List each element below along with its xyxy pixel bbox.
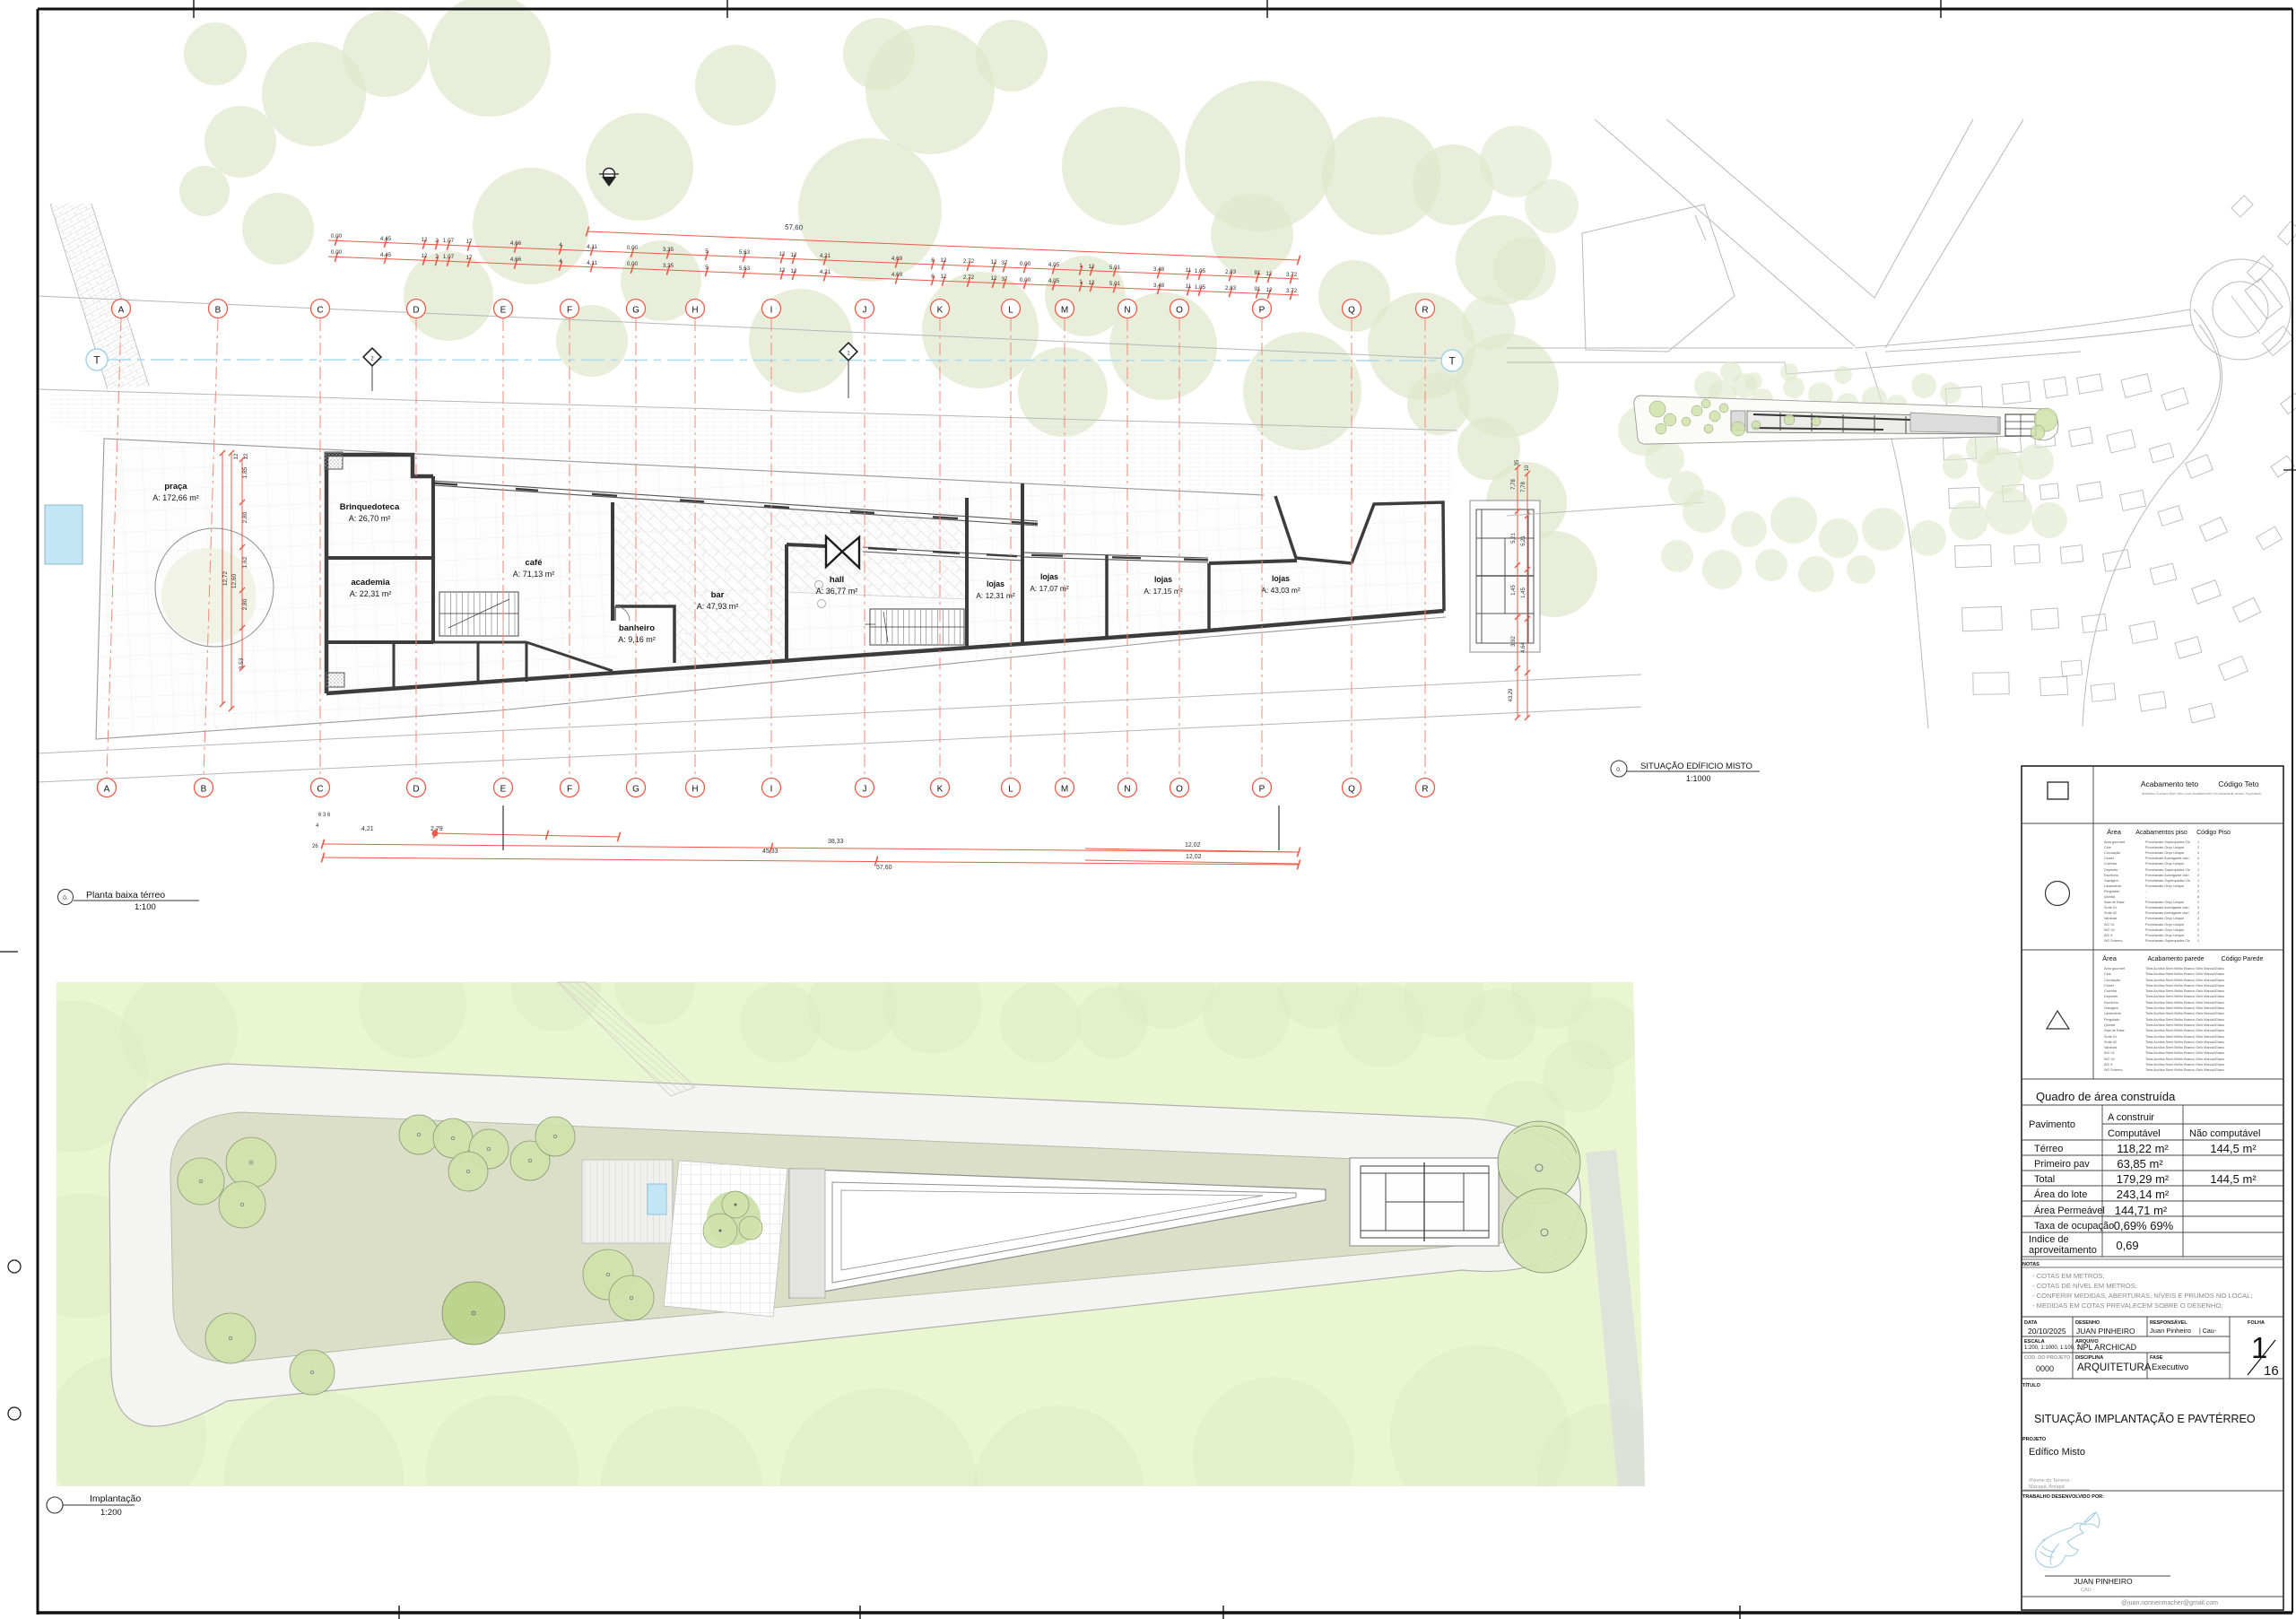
svg-text:Pergolado: Pergolado — [2104, 1018, 2119, 1022]
svg-text:DATA: DATA — [2024, 1320, 2037, 1326]
svg-text:praça: praça — [164, 482, 187, 492]
svg-text:43,29: 43,29 — [1509, 688, 1514, 702]
svg-text:Térreo: Térreo — [2034, 1144, 2063, 1154]
svg-text:1: 1 — [2213, 1063, 2215, 1066]
svg-text:Escritório: Escritório — [2104, 874, 2118, 877]
svg-text:0.: 0. — [63, 895, 68, 901]
svg-text:Suíte 01: Suíte 01 — [2104, 906, 2117, 910]
svg-text:| Cau-: | Cau- — [2199, 1328, 2217, 1335]
svg-text:I: I — [770, 306, 773, 316]
svg-text:2,72: 2,72 — [963, 274, 975, 281]
svg-text:ESCALA: ESCALA — [2024, 1339, 2045, 1345]
svg-text:1: 1 — [2197, 840, 2199, 844]
svg-text:café: café — [525, 558, 542, 568]
svg-text:E: E — [500, 306, 507, 316]
svg-text:1: 1 — [2213, 1058, 2215, 1061]
svg-text:#Nome do Terreno: #Nome do Terreno — [2029, 1478, 2069, 1484]
svg-text:DISCIPLINA: DISCIPLINA — [2075, 1355, 2103, 1361]
svg-text:2,83: 2,83 — [1225, 269, 1237, 275]
svg-text:1: 1 — [1079, 279, 1083, 285]
svg-text:Madeira Cumaru frisó reto com: Madeira Cumaru frisó reto com acabamento… — [2142, 791, 2261, 796]
svg-text:Porcelanato Onyx Unique: Porcelanato Onyx Unique — [2145, 928, 2184, 932]
svg-text:Porcelanato Onyx Unique: Porcelanato Onyx Unique — [2145, 862, 2184, 866]
svg-text:A: 17,15 m²: A: 17,15 m² — [1144, 587, 1183, 596]
svg-text:11: 11 — [1186, 283, 1192, 290]
svg-text:12: 12 — [1088, 264, 1095, 270]
svg-text:R: R — [1422, 306, 1428, 316]
svg-text:Porcelanato Avantgarde clari: Porcelanato Avantgarde clari — [2145, 911, 2189, 915]
svg-text:12: 12 — [778, 267, 786, 274]
svg-text:5,63: 5,63 — [739, 249, 751, 256]
svg-text:3,72: 3,72 — [1286, 288, 1298, 294]
svg-text:E: E — [500, 785, 507, 795]
svg-text:Acabamentos piso: Acabamentos piso — [2135, 830, 2187, 836]
svg-text:L: L — [1008, 785, 1013, 795]
svg-text:4: 4 — [559, 258, 562, 265]
svg-text:38,33: 38,33 — [828, 839, 844, 845]
svg-text:Quintal: Quintal — [2104, 895, 2115, 899]
svg-text:Garagem: Garagem — [2104, 1006, 2118, 1010]
svg-text:WC 01: WC 01 — [2104, 1051, 2115, 1055]
svg-text:0,00: 0,00 — [1020, 261, 1031, 267]
svg-text:4,69: 4,69 — [891, 256, 903, 262]
svg-text:N: N — [1124, 306, 1130, 316]
svg-text:1: 1 — [2213, 984, 2215, 988]
svg-text:1: 1 — [2213, 1023, 2215, 1027]
svg-text:Tinta Acrílica Semi Brilho Bra: Tinta Acrílica Semi Brilho Branco Gelo M… — [2145, 967, 2224, 971]
svg-text:0,69: 0,69 — [2116, 1239, 2138, 1252]
svg-text:3: 3 — [2197, 884, 2199, 888]
svg-text:10: 10 — [1525, 465, 1530, 471]
svg-text:4: 4 — [2197, 851, 2199, 855]
svg-text:0,00: 0,00 — [331, 233, 343, 239]
svg-text:banheiro: banheiro — [619, 623, 655, 633]
svg-text:Tinta Acrílica Semi Brilho Bra: Tinta Acrílica Semi Brilho Branco Gelo M… — [2145, 1051, 2224, 1055]
svg-text:Tinta Acrílica Semi Brilho Bra: Tinta Acrílica Semi Brilho Branco Gelo M… — [2145, 1068, 2224, 1072]
svg-text:2,72: 2,72 — [963, 258, 975, 265]
svg-text:0.: 0. — [1616, 767, 1622, 773]
svg-text:1: 1 — [2213, 989, 2215, 993]
svg-text:A construir: A construir — [2108, 1112, 2154, 1123]
svg-text:Tinta Acrílica Semi Brilho Bra: Tinta Acrílica Semi Brilho Branco Gelo M… — [2145, 979, 2224, 982]
svg-text:Área do lote: Área do lote — [2034, 1188, 2087, 1200]
svg-text:12: 12 — [990, 259, 997, 265]
svg-text:Cozinha: Cozinha — [2104, 862, 2118, 866]
svg-text:12,72: 12,72 — [222, 570, 229, 586]
svg-text:hall: hall — [830, 575, 844, 585]
svg-text:A: 47,93 m²: A: 47,93 m² — [697, 602, 739, 611]
svg-text:WC II: WC II — [2104, 1063, 2113, 1066]
svg-text:Depósito: Depósito — [2104, 868, 2118, 872]
svg-text:12: 12 — [1088, 280, 1095, 286]
svg-text:T: T — [1448, 355, 1456, 368]
svg-text:1: 1 — [2213, 1001, 2215, 1005]
svg-text:Código Piso: Código Piso — [2196, 830, 2231, 836]
svg-text:26: 26 — [312, 844, 318, 849]
svg-text:Depósito: Depósito — [2104, 995, 2118, 998]
svg-text:TÍTULO: TÍTULO — [2022, 1381, 2041, 1388]
svg-text:3,53: 3,53 — [239, 657, 245, 669]
svg-text:4,05: 4,05 — [1048, 278, 1060, 284]
svg-text:1: 1 — [2251, 1331, 2267, 1364]
svg-text:0,69% 69%: 0,69% 69% — [2114, 1219, 2174, 1232]
svg-text:Tinta Acrílica Semi Brilho Bra: Tinta Acrílica Semi Brilho Branco Gelo M… — [2145, 1023, 2224, 1027]
svg-text:3: 3 — [2197, 911, 2199, 915]
svg-text:Lavanderia: Lavanderia — [2104, 1012, 2122, 1015]
svg-text:20/10/2025: 20/10/2025 — [2028, 1327, 2066, 1336]
svg-text:P: P — [1259, 306, 1265, 316]
svg-text:4,45: 4,45 — [380, 236, 392, 242]
svg-text:1: 1 — [2213, 1018, 2215, 1022]
svg-text:O: O — [1176, 306, 1183, 316]
svg-text:4,66: 4,66 — [510, 240, 522, 247]
svg-text:COD. DO PROJETO: COD. DO PROJETO — [2024, 1355, 2071, 1361]
svg-text:A: 12,31 m²: A: 12,31 m² — [976, 591, 1015, 600]
svg-text:1,62: 1,62 — [242, 556, 248, 568]
svg-text:144,71 m²: 144,71 m² — [2115, 1204, 2168, 1217]
svg-text:Área: Área — [2107, 828, 2122, 836]
svg-text:J: J — [863, 785, 867, 795]
svg-text:1: 1 — [2213, 1029, 2215, 1032]
svg-text:17: 17 — [465, 239, 473, 245]
svg-text:2: 2 — [2197, 928, 2199, 932]
svg-text:8: 8 — [2197, 895, 2199, 899]
svg-text:Cozinha: Cozinha — [2104, 989, 2118, 993]
svg-text:1:1000: 1:1000 — [1686, 774, 1711, 783]
svg-text:4,64: 4,64 — [1521, 642, 1526, 653]
svg-text:- MEDIDAS EM COTAS PREVALECEM: - MEDIDAS EM COTAS PREVALECEM SOBRE O DE… — [2032, 1301, 2222, 1310]
svg-text:Porcelanato Onyx Unique: Porcelanato Onyx Unique — [2145, 923, 2184, 927]
svg-text:Porcelanato Onyx Unique: Porcelanato Onyx Unique — [2145, 884, 2184, 888]
svg-text:Acabamento parede: Acabamento parede — [2147, 956, 2204, 962]
svg-text:Varanda: Varanda — [2104, 917, 2118, 920]
svg-text:5,21: 5,21 — [1521, 535, 1526, 546]
svg-text:A: 43,03 m²: A: 43,03 m² — [1261, 586, 1300, 595]
svg-text:91: 91 — [1254, 270, 1261, 276]
svg-text:M: M — [1061, 306, 1068, 316]
svg-text:DESENHO: DESENHO — [2075, 1320, 2100, 1326]
svg-text:K: K — [937, 306, 944, 316]
svg-text:Edífico Misto: Edífico Misto — [2029, 1447, 2085, 1458]
svg-text:Sala de Estar: Sala de Estar — [2104, 901, 2126, 904]
svg-text:Porcelanato Superquadra Cls: Porcelanato Superquadra Cls — [2145, 879, 2190, 883]
svg-text:2: 2 — [2197, 923, 2199, 927]
svg-text:1,07: 1,07 — [443, 254, 455, 260]
svg-text:144,5 m²: 144,5 m² — [2210, 1172, 2257, 1186]
svg-text:Código Parede: Código Parede — [2222, 956, 2264, 962]
svg-text:A: 17,07 m²: A: 17,07 m² — [1030, 584, 1069, 593]
svg-text:Código Teto: Código Teto — [2218, 779, 2258, 788]
svg-text:7,78: 7,78 — [1511, 479, 1517, 490]
svg-text:Tinta Acrílica Semi Brilho Bra: Tinta Acrílica Semi Brilho Branco Gelo M… — [2145, 995, 2224, 998]
svg-text:R: R — [1422, 785, 1428, 795]
svg-text:3,35: 3,35 — [663, 263, 674, 269]
svg-text:A: 36,77 m²: A: 36,77 m² — [816, 587, 858, 596]
svg-text:1,45: 1,45 — [1521, 588, 1526, 598]
svg-text:O: O — [1176, 785, 1183, 795]
svg-text:Área gourmet: Área gourmet — [2104, 840, 2126, 844]
svg-text:Porcelanato Onyx Unique: Porcelanato Onyx Unique — [2145, 934, 2184, 937]
svg-text:1: 1 — [2197, 939, 2199, 943]
svg-text:WC 02: WC 02 — [2104, 1058, 2115, 1061]
svg-text:Porcelanato Avantgarde clari: Porcelanato Avantgarde clari — [2145, 857, 2189, 860]
svg-text:12,60: 12,60 — [231, 573, 238, 588]
svg-text:3,72: 3,72 — [1286, 272, 1298, 278]
svg-text:4,11: 4,11 — [587, 244, 597, 250]
svg-text:5: 5 — [705, 248, 709, 255]
svg-text:N: N — [1124, 785, 1130, 795]
svg-text:3,92: 3,92 — [1511, 636, 1517, 647]
svg-text:M: M — [1061, 785, 1068, 795]
svg-text:G: G — [632, 306, 639, 316]
svg-text:Q: Q — [1348, 785, 1355, 795]
svg-text:Q: Q — [1348, 306, 1355, 316]
svg-text:Tinta Acrílica Semi Brilho Bra: Tinta Acrílica Semi Brilho Branco Gelo M… — [2145, 1063, 2224, 1066]
svg-text:Tinta Acrílica Semi Brilho Bra: Tinta Acrílica Semi Brilho Branco Gelo M… — [2145, 1035, 2224, 1039]
svg-text:6: 6 — [931, 257, 935, 264]
svg-text:2: 2 — [2197, 874, 2199, 877]
svg-text:Área gourmet: Área gourmet — [2104, 967, 2126, 971]
svg-text:Suíte 02: Suíte 02 — [2104, 911, 2117, 915]
svg-text:Taxa de ocupação: Taxa de ocupação — [2034, 1221, 2114, 1232]
svg-text:12: 12 — [778, 251, 786, 257]
svg-text:CAU -: CAU - — [2081, 1588, 2094, 1593]
svg-text:12: 12 — [990, 275, 997, 282]
svg-text:Tinta Acrílica Semi Brilho Bra: Tinta Acrílica Semi Brilho Branco Gelo M… — [2145, 1046, 2224, 1049]
svg-text:Pergolado: Pergolado — [2104, 890, 2119, 893]
svg-text:4,45: 4,45 — [380, 252, 392, 258]
svg-text:K: K — [937, 785, 944, 795]
svg-text:Quintal: Quintal — [2104, 1023, 2115, 1027]
svg-text:bar: bar — [711, 590, 725, 600]
svg-text:144,5 m²: 144,5 m² — [2210, 1142, 2257, 1155]
svg-text:Tinta Acrílica Semi Brilho Bra: Tinta Acrílica Semi Brilho Branco Gelo M… — [2145, 1006, 2224, 1010]
svg-text:5,01: 5,01 — [1109, 265, 1121, 271]
svg-text:1: 1 — [2213, 967, 2215, 971]
svg-text:0,00: 0,00 — [331, 249, 343, 256]
svg-text:5,63: 5,63 — [739, 265, 751, 272]
svg-text:Lavanderia: Lavanderia — [2104, 884, 2122, 888]
svg-text:Executivo: Executivo — [2152, 1362, 2188, 1372]
svg-text:C: C — [317, 785, 323, 795]
svg-text:Porcelanato Avantgarde clari: Porcelanato Avantgarde clari — [2145, 906, 2189, 910]
svg-text:Suíte 01: Suíte 01 — [2104, 1035, 2117, 1039]
svg-text:1: 1 — [2197, 868, 2199, 872]
svg-text:1,07: 1,07 — [443, 238, 455, 244]
svg-text:A: A — [118, 306, 125, 316]
svg-text:B: B — [215, 306, 222, 316]
svg-text:1: 1 — [2213, 1012, 2215, 1015]
svg-text:5: 5 — [705, 265, 709, 271]
svg-text:Porcelanato Onyx Unique: Porcelanato Onyx Unique — [2145, 851, 2184, 855]
svg-text:WC 02: WC 02 — [2104, 928, 2115, 932]
svg-text:Tinta Acrílica Semi Brilho Bra: Tinta Acrílica Semi Brilho Branco Gelo M… — [2145, 1001, 2224, 1005]
svg-text:Tinta Acrílica Semi Brilho Bra: Tinta Acrílica Semi Brilho Branco Gelo M… — [2145, 1029, 2224, 1032]
svg-text:Porcelanato Onyx Unique: Porcelanato Onyx Unique — [2145, 917, 2184, 920]
svg-text:Porcelanato Superquadra Cls: Porcelanato Superquadra Cls — [2145, 939, 2190, 943]
svg-text:12,02: 12,02 — [1185, 842, 1201, 849]
svg-text:91: 91 — [1254, 286, 1261, 292]
svg-text:37: 37 — [1001, 276, 1008, 283]
svg-text:Tinta Acrílica Semi Brilho Bra: Tinta Acrílica Semi Brilho Branco Gelo M… — [2145, 1018, 2224, 1022]
svg-text:6 3 6: 6 3 6 — [318, 813, 331, 818]
svg-text:Porcelanato Superquadra Cls: Porcelanato Superquadra Cls — [2145, 868, 2190, 872]
svg-text:3,35: 3,35 — [663, 247, 674, 253]
svg-text:1:200: 1:200 — [100, 1508, 122, 1518]
svg-text:Closet: Closet — [2104, 984, 2115, 988]
svg-text:Quadro de área construída: Quadro de área construída — [2036, 1090, 2176, 1103]
svg-text:12: 12 — [1265, 271, 1273, 277]
svg-text:FASE: FASE — [2150, 1355, 2163, 1361]
svg-text:@juan.nonnenmacher@gmail.com: @juan.nonnenmacher@gmail.com — [2121, 1600, 2218, 1606]
svg-text:0,00: 0,00 — [1020, 277, 1031, 283]
svg-text:1,85: 1,85 — [242, 466, 248, 478]
svg-text:NPL ARCHICAD: NPL ARCHICAD — [2077, 1343, 2137, 1352]
svg-text:17: 17 — [465, 255, 473, 261]
svg-text:2: 2 — [2197, 862, 2199, 866]
svg-text:12: 12 — [1265, 287, 1273, 293]
svg-text:A: A — [104, 785, 110, 795]
svg-text:Garagem: Garagem — [2104, 879, 2118, 883]
svg-text:12: 12 — [790, 268, 797, 274]
svg-text:Cine: Cine — [2104, 972, 2111, 976]
svg-text:A: 26,70 m²: A: 26,70 m² — [349, 514, 391, 523]
svg-text:2: 2 — [435, 254, 439, 260]
svg-text:37: 37 — [1001, 260, 1008, 266]
svg-text:12: 12 — [940, 257, 947, 264]
svg-text:Varanda: Varanda — [2104, 1046, 2118, 1049]
svg-text:G: G — [632, 785, 639, 795]
svg-text:4: 4 — [2197, 857, 2199, 860]
svg-text:2: 2 — [2197, 890, 2199, 893]
svg-text:2: 2 — [2197, 934, 2199, 937]
svg-text:C: C — [317, 306, 323, 316]
svg-text:FOLHA: FOLHA — [2248, 1320, 2265, 1326]
svg-text:RESPONSÁVEL: RESPONSÁVEL — [2150, 1319, 2187, 1326]
svg-text:3,48: 3,48 — [1153, 266, 1165, 273]
svg-text:lojas: lojas — [987, 579, 1004, 588]
svg-text:academia: academia — [351, 578, 390, 588]
svg-text:1: 1 — [2197, 879, 2199, 883]
svg-text:L: L — [1008, 306, 1013, 316]
svg-text:4,69: 4,69 — [891, 272, 903, 278]
svg-text:11: 11 — [1186, 267, 1192, 274]
svg-text:4,05: 4,05 — [1048, 262, 1060, 268]
svg-text:1:100: 1:100 — [135, 902, 156, 912]
svg-text:F: F — [567, 306, 572, 316]
svg-text:2,80: 2,80 — [242, 511, 248, 523]
svg-text:1: 1 — [2213, 979, 2215, 982]
svg-text:TRABALHO DESENVOLVIDO POR:: TRABALHO DESENVOLVIDO POR: — [2022, 1494, 2104, 1500]
svg-text:57,60: 57,60 — [785, 223, 804, 232]
svg-text:243,14 m²: 243,14 m² — [2117, 1188, 2170, 1201]
svg-text:1: 1 — [2213, 1068, 2215, 1072]
svg-text:Porcelanato Superquadra Cls: Porcelanato Superquadra Cls — [2145, 840, 2190, 844]
svg-text:12: 12 — [243, 453, 249, 460]
svg-text:0,00: 0,00 — [627, 261, 639, 267]
svg-text:Cine: Cine — [2104, 846, 2111, 849]
svg-text:J: J — [863, 306, 867, 316]
svg-text:Implantação: Implantação — [90, 1493, 141, 1504]
svg-text:H: H — [691, 785, 698, 795]
svg-text:2: 2 — [435, 238, 439, 244]
svg-text:- CONFERIR MEDIDAS, ABERTURAS,: - CONFERIR MEDIDAS, ABERTURAS, NÍVEIS E … — [2032, 1292, 2252, 1300]
svg-text:3: 3 — [2197, 906, 2199, 910]
svg-text:lojas: lojas — [1154, 575, 1172, 584]
svg-text:Circulação: Circulação — [2104, 851, 2120, 855]
svg-text:Escritório: Escritório — [2104, 1001, 2118, 1005]
svg-text:Porcelanato Avantgarde clari: Porcelanato Avantgarde clari — [2145, 874, 2189, 877]
svg-text:Circulação: Circulação — [2104, 979, 2120, 982]
svg-text:1,05: 1,05 — [1195, 268, 1206, 274]
svg-text:2,83: 2,83 — [1225, 285, 1237, 292]
svg-text:1: 1 — [2213, 972, 2215, 976]
svg-text:Closet: Closet — [2104, 857, 2115, 860]
svg-text:JUAN PINHEIRO: JUAN PINHEIRO — [2074, 1577, 2133, 1586]
svg-text:12,02: 12,02 — [1186, 854, 1202, 860]
svg-text:ARQUITETURA: ARQUITETURA — [2077, 1362, 2152, 1373]
svg-text:4: 4 — [559, 242, 562, 248]
svg-text:SITUAÇÃO EDÍFICIO MISTO: SITUAÇÃO EDÍFICIO MISTO — [1640, 762, 1752, 771]
svg-text:12: 12 — [421, 253, 428, 259]
svg-text:1: 1 — [2213, 1051, 2215, 1055]
svg-text:aproveitamento: aproveitamento — [2029, 1245, 2097, 1256]
svg-text:SITUAÇÃO IMPLANTAÇÃO E PAVTÉRR: SITUAÇÃO IMPLANTAÇÃO E PAVTÉRREO — [2034, 1412, 2256, 1425]
svg-text:JUAN PINHEIRO: JUAN PINHEIRO — [2076, 1327, 2135, 1336]
svg-text:Sala de Estar: Sala de Estar — [2104, 1029, 2126, 1032]
svg-text:D: D — [413, 785, 419, 795]
svg-text:1,05: 1,05 — [1195, 284, 1206, 291]
svg-text:2: 2 — [2197, 901, 2199, 904]
svg-text:2,80: 2,80 — [242, 598, 248, 610]
svg-text:Área: Área — [2102, 954, 2118, 962]
svg-text:4,21: 4,21 — [820, 253, 831, 259]
svg-text:7,78: 7,78 — [1521, 482, 1526, 492]
svg-text:Acabamento teto: Acabamento teto — [2141, 779, 2199, 788]
svg-text:T: T — [93, 354, 100, 367]
svg-text:Porcelanato Onyx Unique: Porcelanato Onyx Unique — [2145, 901, 2184, 904]
svg-text:lojas: lojas — [1040, 572, 1058, 581]
svg-text:63,85 m²: 63,85 m² — [2117, 1157, 2163, 1171]
svg-text:Área Permeável: Área Permeável — [2034, 1205, 2105, 1216]
svg-text:Não computável: Não computável — [2189, 1128, 2261, 1139]
svg-text:Total: Total — [2034, 1174, 2055, 1185]
svg-text:A: 172,66 m²: A: 172,66 m² — [152, 493, 199, 502]
svg-text:- COTAS EM METROS;: - COTAS EM METROS; — [2032, 1272, 2104, 1280]
svg-text:1,45: 1,45 — [1511, 585, 1517, 596]
svg-text:Computável: Computável — [2108, 1128, 2161, 1139]
svg-text:WC 01: WC 01 — [2104, 923, 2115, 927]
svg-text:16: 16 — [2264, 1363, 2279, 1379]
svg-text:1:200, 1:1000, 1:100, 1:: 1:200, 1:1000, 1:100, 1: — [2024, 1345, 2082, 1351]
svg-text:Tinta Acrílica Semi Brilho Bra: Tinta Acrílica Semi Brilho Branco Gelo M… — [2145, 1012, 2224, 1015]
svg-text:lojas: lojas — [1272, 574, 1290, 583]
svg-text:Tinta Acrílica Semi Brilho Bra: Tinta Acrílica Semi Brilho Branco Gelo M… — [2145, 989, 2224, 993]
svg-text:F: F — [567, 785, 572, 795]
svg-text:45,33: 45,33 — [762, 849, 778, 855]
svg-text:2: 2 — [2197, 846, 2199, 849]
svg-text:6: 6 — [931, 274, 935, 280]
svg-text:- COTAS DE NÍVEL EM METROS;: - COTAS DE NÍVEL EM METROS; — [2032, 1282, 2137, 1290]
svg-text:4,66: 4,66 — [510, 257, 522, 263]
svg-text:4,11: 4,11 — [587, 260, 597, 266]
svg-text:1: 1 — [1079, 263, 1083, 269]
svg-text:4,21: 4,21 — [361, 826, 374, 832]
svg-text:Indice de: Indice de — [2029, 1234, 2069, 1245]
svg-text:3,48: 3,48 — [1153, 283, 1165, 289]
svg-text:WC Externo: WC Externo — [2104, 939, 2122, 943]
svg-text:Tinta Acrílica Semi Brilho Bra: Tinta Acrílica Semi Brilho Branco Gelo M… — [2145, 1058, 2224, 1061]
